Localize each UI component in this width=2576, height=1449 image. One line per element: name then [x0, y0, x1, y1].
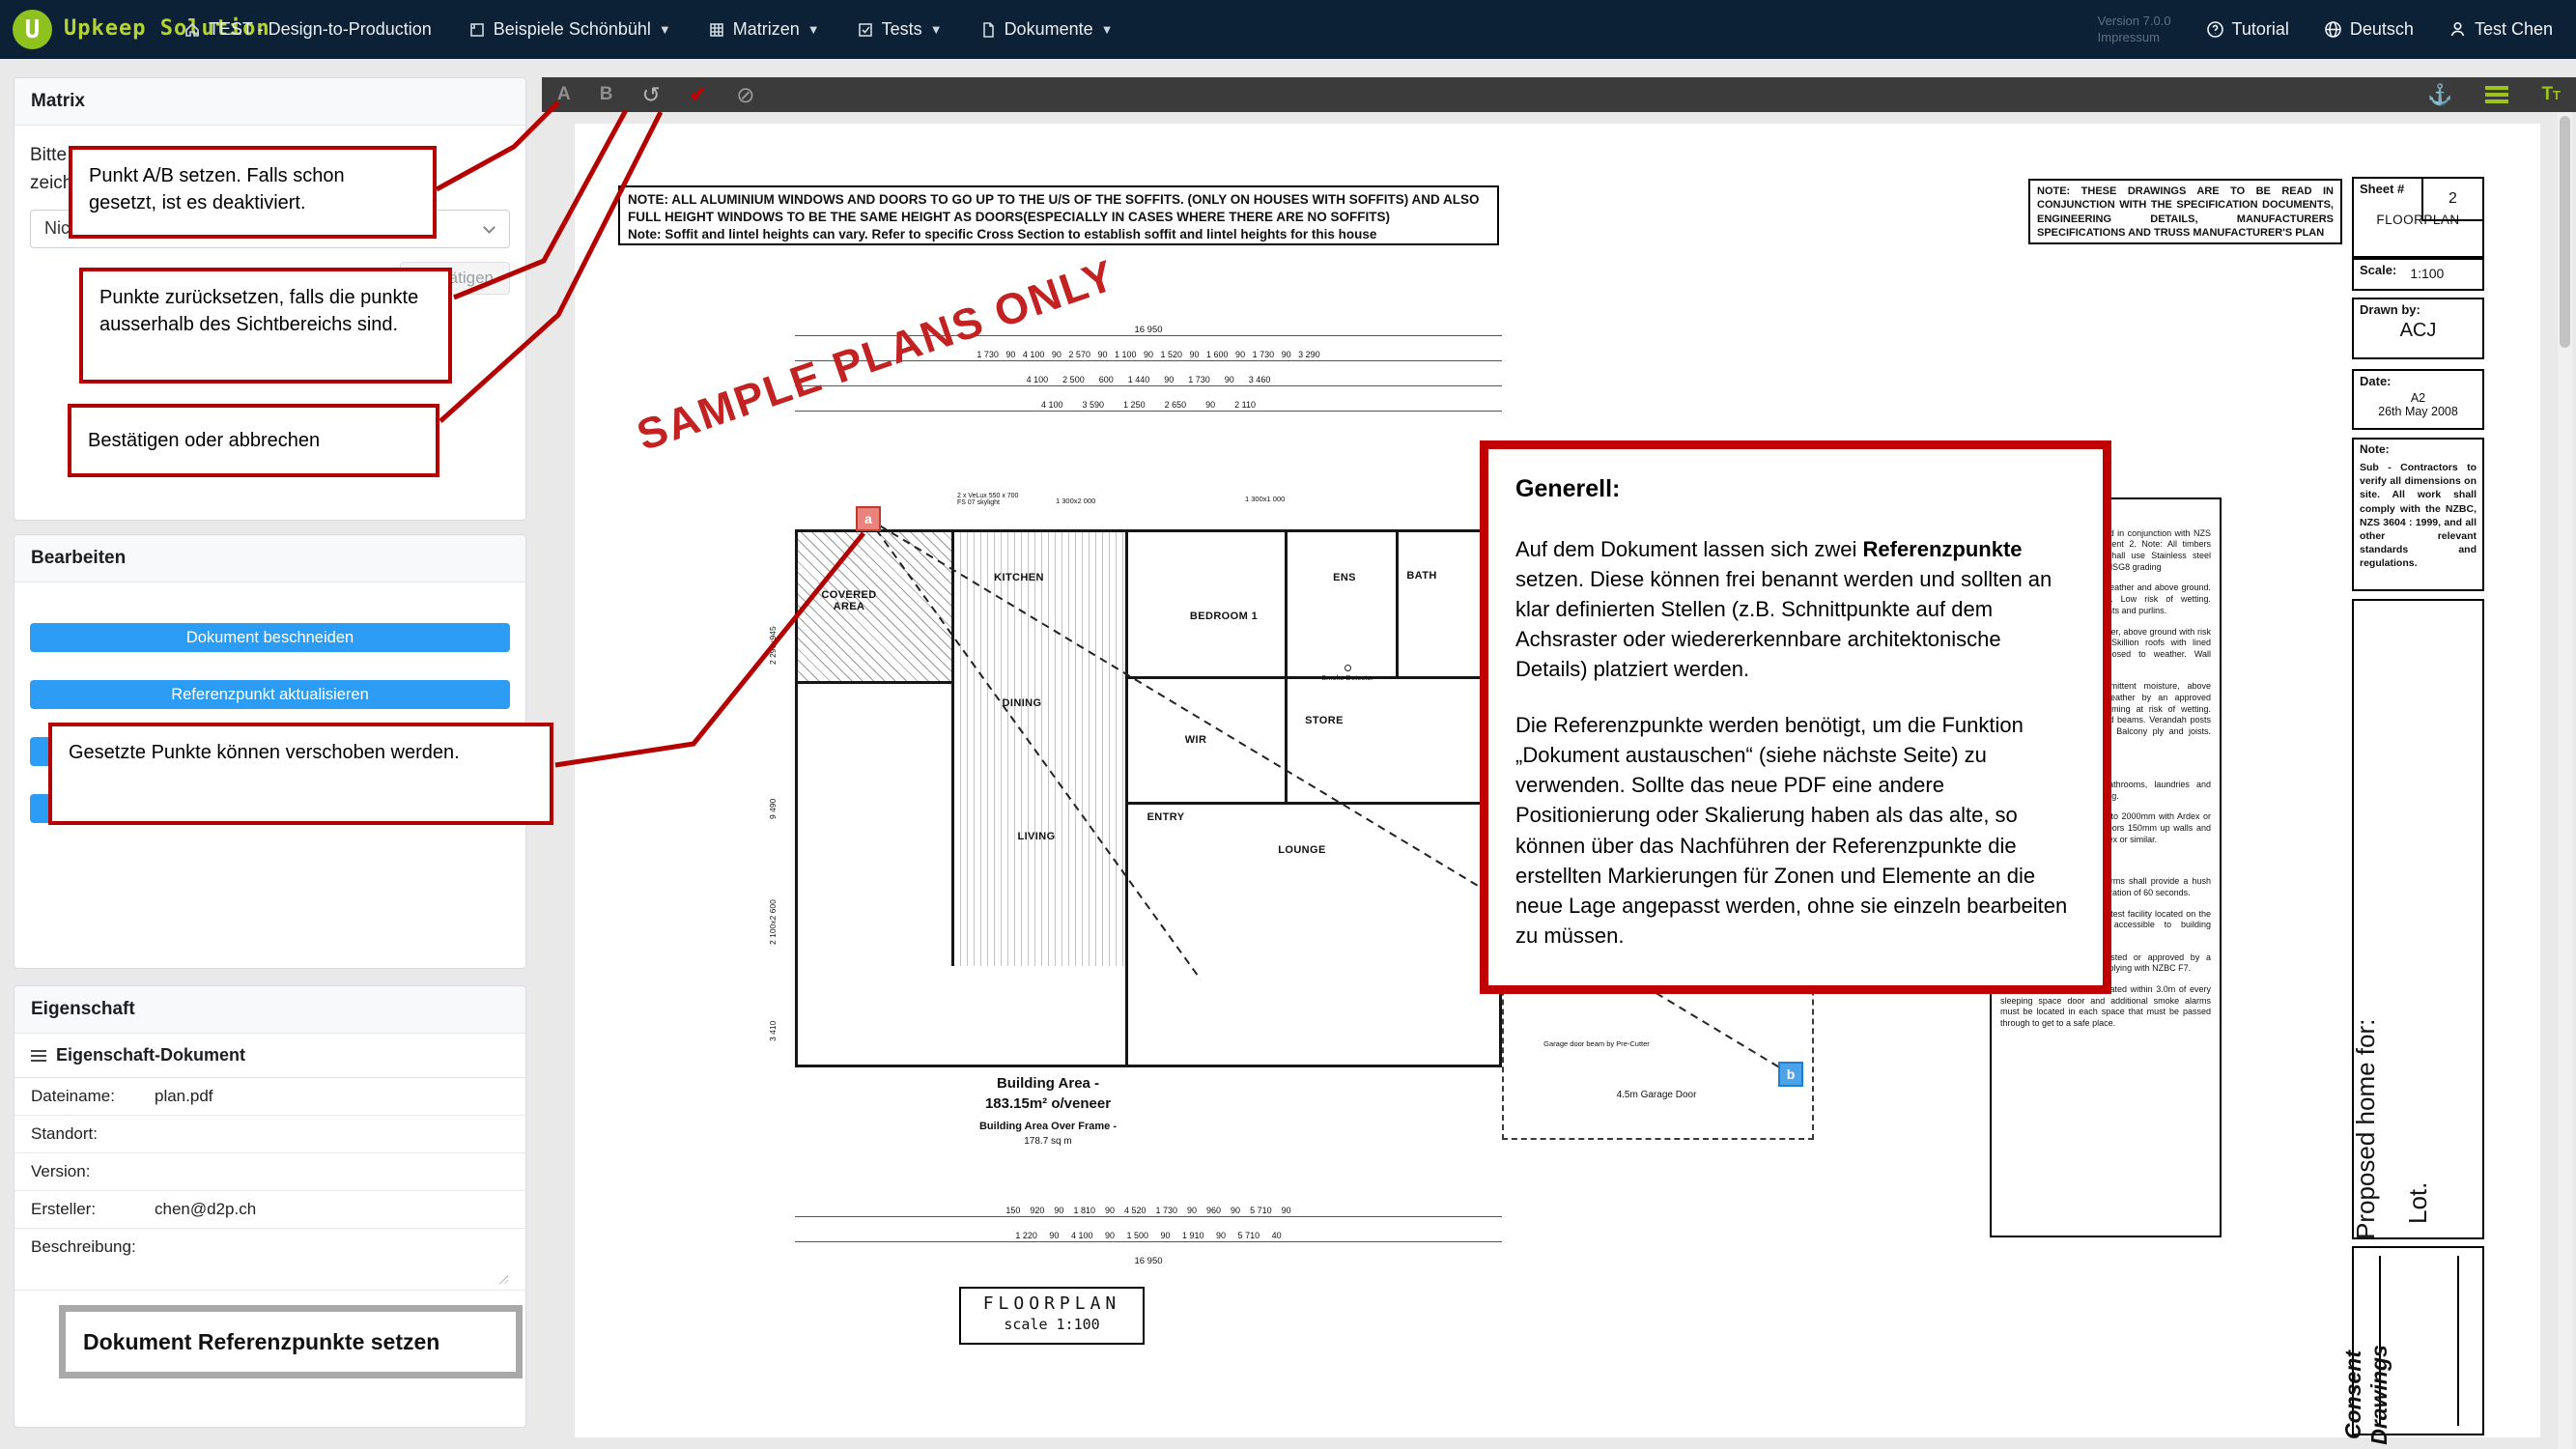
topbar-right: Version 7.0.0 Impressum Tutorial Deutsch…	[2098, 0, 2553, 59]
skylight-note-line2: FS 07 skylight	[957, 499, 1000, 506]
smoke-detector-icon	[1345, 665, 1351, 671]
menu-item-dokumente[interactable]: Dokumente ▼	[979, 19, 1114, 40]
scale-value: 1:100	[2410, 266, 2444, 281]
property-label: Ersteller:	[31, 1200, 155, 1219]
properties-section-title: Eigenschaft-Dokument	[56, 1045, 245, 1065]
room-label: KITCHEN	[980, 572, 1058, 583]
chevron-down-icon: ▼	[659, 22, 671, 37]
wall-interior-v1	[951, 529, 954, 966]
property-label: Standort:	[31, 1124, 155, 1144]
drawnby-value: ACJ	[2354, 320, 2482, 342]
wall-interior-v2	[1125, 529, 1128, 1067]
consent-line2: Drawings	[2366, 1345, 2392, 1445]
anchor-icon[interactable]: ⚓	[2427, 85, 2452, 105]
callout-move-points: Gesetzte Punkte können verschoben werden…	[48, 723, 553, 825]
date-value-1: A2	[2354, 391, 2482, 405]
property-label: Version:	[31, 1162, 155, 1181]
plan-top-note: NOTE: ALL ALUMINIUM WINDOWS AND DOORS TO…	[618, 185, 1499, 245]
text-size-icon[interactable]: TT	[2541, 84, 2561, 105]
list-icon	[31, 1050, 46, 1062]
property-label: Beschreibung:	[31, 1237, 155, 1281]
chevron-down-icon: ▼	[1101, 22, 1114, 37]
property-row-location: Standort:	[14, 1116, 525, 1153]
crop-document-button[interactable]: Dokument beschneiden	[30, 623, 510, 652]
top-note-text-2: Note: Soffit and lintel heights can vary…	[628, 227, 1376, 241]
impressum-link[interactable]: Impressum	[2098, 30, 2171, 46]
dim-bottom-total: 16 950	[795, 1256, 1502, 1266]
window-size-label-2: 1 300x1 000	[1245, 495, 1285, 503]
dim-top-row1: 1 730 90 4 100 90 2 570 90 1 100 90 1 52…	[795, 350, 1502, 361]
person-icon	[2449, 20, 2467, 39]
document-icon	[979, 21, 997, 39]
tutorial-label: Tutorial	[2232, 19, 2289, 40]
menu-label: TEST - Design-to-Production	[209, 19, 432, 40]
menu-item-tests[interactable]: Tests ▼	[857, 19, 943, 40]
check-square-icon	[857, 21, 874, 39]
tutorial-link[interactable]: Tutorial	[2206, 19, 2289, 40]
version-text: Version 7.0.0	[2098, 14, 2171, 30]
property-label: Dateiname:	[31, 1087, 155, 1106]
floorplan-title: FLOORPLAN	[961, 1293, 1143, 1314]
wall-interior-h1	[1125, 676, 1502, 679]
building-area-line4: 178.7 sq m	[942, 1136, 1154, 1147]
top-note-text-1: NOTE: ALL ALUMINIUM WINDOWS AND DOORS TO…	[628, 192, 1480, 224]
room-label: STORE	[1295, 715, 1353, 726]
properties-panel-title: Eigenschaft	[14, 986, 525, 1034]
room-label: WIR	[1172, 734, 1220, 746]
titleblock-scale-box: Scale: 1:100	[2352, 258, 2484, 291]
wall-bottom	[795, 1065, 1502, 1067]
reset-points-button undo-icon[interactable]: ↺	[641, 84, 660, 106]
scale-label: Scale:	[2354, 260, 2402, 280]
update-reference-point-button[interactable]: Referenzpunkt aktualisieren	[30, 680, 510, 709]
lot-label: Lot.	[2403, 1182, 2433, 1224]
date-label: Date:	[2354, 371, 2482, 391]
titleblock-sheet-box: Sheet # 2 FLOORPLAN	[2352, 177, 2484, 258]
confirm-points-button check-icon[interactable]: ✔	[690, 84, 707, 105]
card-icon	[468, 21, 486, 39]
properties-panel: Eigenschaft Eigenschaft-Dokument Dateina…	[14, 985, 526, 1428]
floorplan-title-box: FLOORPLAN scale 1:100	[959, 1287, 1145, 1345]
titleblock-note-box: Note: Sub - Contractors to verify all di…	[2352, 438, 2484, 591]
app-root: U Upkeep Solution TEST - Design-to-Produ…	[0, 0, 2576, 1449]
sheet-number: 2	[2421, 179, 2482, 221]
reference-point-a-marker[interactable]: a	[856, 506, 881, 531]
generell-paragraph-2: Die Referenzpunkte werden benötigt, um d…	[1515, 710, 2076, 952]
date-value-2: 26th May 2008	[2354, 405, 2482, 418]
document-toolbar: A B ↺ ✔ ⊘ ⚓ TT	[542, 77, 2576, 112]
wall-interior-h2	[1125, 802, 1502, 805]
chevron-down-icon	[483, 221, 495, 234]
top-navigation-bar: U Upkeep Solution TEST - Design-to-Produ…	[0, 0, 2576, 59]
property-row-description: Beschreibung:	[14, 1229, 525, 1291]
right-note-text: NOTE: THESE DRAWINGS ARE TO BE READ IN C…	[2037, 185, 2334, 239]
slide-title: Dokument Referenzpunkte setzen	[83, 1329, 439, 1355]
property-row-creator: Ersteller: chen@d2p.ch	[14, 1191, 525, 1229]
dim-bottom-row1: 150 920 90 1 810 90 4 520 1 730 90 960 9…	[795, 1206, 1502, 1217]
drawnby-label: Drawn by:	[2354, 299, 2482, 320]
generell-title: Generell:	[1515, 472, 2076, 507]
slide-title-frame: Dokument Referenzpunkte setzen	[59, 1305, 523, 1378]
room-label: LOUNGE	[1265, 844, 1339, 856]
dim-left-3: 2 100x2 600	[768, 899, 778, 945]
room-label: DINING	[983, 697, 1061, 709]
proposed-home-label: Proposed home for:	[2351, 1019, 2381, 1239]
room-label: ENTRY	[1135, 811, 1197, 823]
wall-left	[795, 529, 798, 1067]
room-label: BATH	[1398, 570, 1446, 582]
chevron-down-icon: ▼	[807, 22, 820, 37]
consent-line1: Consent	[2340, 1350, 2365, 1439]
generell-annotation-box: Generell: Auf dem Dokument lassen sich z…	[1480, 440, 2111, 994]
dim-top-total: 16 950	[795, 325, 1502, 336]
layers-menu-icon[interactable]	[2485, 86, 2508, 103]
titleblock-proposed-box: Proposed home for: Lot.	[2352, 599, 2484, 1239]
floorplan-scale: scale 1:100	[961, 1316, 1143, 1333]
callout-confirm-cancel: Bestätigen oder abbrechen	[68, 404, 439, 477]
main-scrollbar-track[interactable]	[2558, 112, 2572, 1449]
menu-item-beispiele[interactable]: Beispiele Schönbühl ▼	[468, 19, 671, 40]
menu-label: Tests	[882, 19, 922, 40]
titleblock-consent-box: Consent Drawings	[2352, 1246, 2484, 1435]
toolbar-right-group: ⚓ TT	[2427, 84, 2561, 105]
question-circle-icon	[2206, 20, 2224, 39]
main-menu: TEST - Design-to-Production Beispiele Sc…	[184, 0, 1114, 59]
garage-door-label: 4.5m Garage Door	[1579, 1090, 1734, 1100]
property-row-filename: Dateiname: plan.pdf	[14, 1078, 525, 1116]
plan-right-note: NOTE: THESE DRAWINGS ARE TO BE READ IN C…	[2028, 179, 2342, 244]
reference-point-b-marker[interactable]: b	[1778, 1062, 1803, 1087]
titleblock-note-text: Sub - Contractors to verify all dimensio…	[2354, 459, 2482, 572]
home-icon	[184, 21, 201, 39]
menu-item-project[interactable]: TEST - Design-to-Production	[184, 19, 432, 40]
property-value: plan.pdf	[155, 1087, 213, 1106]
room-label: COVERED AREA	[810, 589, 888, 612]
main-scrollbar-thumb[interactable]	[2560, 116, 2570, 348]
version-info: Version 7.0.0 Impressum	[2098, 14, 2171, 46]
set-point-a-button[interactable]: A	[557, 84, 571, 105]
wall-interior-v3	[1285, 529, 1288, 802]
garage-beam-label: Garage door beam by Pre-Cutter	[1529, 1039, 1664, 1048]
room-label: BEDROOM 1	[1175, 611, 1272, 622]
building-area-line3: Building Area Over Frame -	[942, 1121, 1154, 1132]
wall-covered-area	[795, 681, 954, 684]
building-area-line1: Building Area -	[942, 1075, 1154, 1092]
upkeep-logo[interactable]: U	[13, 10, 52, 49]
resize-handle-icon[interactable]	[498, 1274, 508, 1284]
smoke-detector-label: Smoke Detector	[1318, 665, 1376, 682]
skylight-note-line1: 2 x VeLux 550 x 700	[957, 493, 1018, 499]
callout-reset-points: Punkte zurücksetzen, falls die punkte au…	[79, 268, 452, 384]
titleblock-date-box: Date: A2 26th May 2008	[2352, 369, 2484, 430]
dim-left-2: 9 490	[768, 799, 778, 819]
titleblock-note-label: Note:	[2354, 440, 2482, 459]
consent-rule-right	[2457, 1256, 2459, 1426]
user-label: Test Chen	[2475, 19, 2553, 40]
wall-interior-v4	[1396, 529, 1399, 676]
cancel-points-button prohibition-icon[interactable]: ⊘	[736, 84, 754, 106]
generell-paragraph-1: Auf dem Dokument lassen sich zwei Refere…	[1515, 534, 2076, 685]
room-label: LIVING	[998, 831, 1075, 842]
skylight-note: 2 x VeLux 550 x 700 FS 07 skylight	[957, 493, 1044, 506]
dim-left-4: 3 410	[768, 1021, 778, 1041]
titleblock-drawnby-box: Drawn by: ACJ	[2352, 298, 2484, 359]
dim-left-1: 2 290x945	[768, 626, 778, 665]
grid-icon	[708, 21, 725, 39]
dim-bottom-row2: 1 220 90 4 100 90 1 500 90 1 910 90 5 71…	[795, 1231, 1502, 1242]
menu-label: Beispiele Schönbühl	[494, 19, 651, 40]
globe-icon	[2324, 20, 2342, 39]
room-label: ENS	[1323, 572, 1366, 583]
menu-label: Dokumente	[1005, 19, 1093, 40]
timber-floor-hatching	[954, 532, 1125, 966]
dim-top-row2: 4 100 2 500 600 1 440 90 1 730 90 3 460	[795, 375, 1502, 386]
menu-item-matrizen[interactable]: Matrizen ▼	[708, 19, 820, 40]
matrix-panel-title: Matrix	[14, 78, 525, 126]
smoke-detector-text: Smoke Detector	[1321, 673, 1373, 682]
chevron-down-icon: ▼	[930, 22, 943, 37]
set-point-b-button[interactable]: B	[600, 84, 613, 105]
menu-label: Matrizen	[733, 19, 800, 40]
window-size-label-1: 1 300x2 000	[1056, 497, 1095, 505]
logo-letter: U	[25, 15, 41, 44]
property-row-version: Version:	[14, 1153, 525, 1191]
user-menu[interactable]: Test Chen	[2449, 19, 2553, 40]
property-value: chen@d2p.ch	[155, 1200, 256, 1219]
callout-point-ab: Punkt A/B setzen. Falls schon gesetzt, i…	[69, 146, 437, 239]
building-area-line2: 183.15m² o/veneer	[942, 1095, 1154, 1112]
language-switch[interactable]: Deutsch	[2324, 19, 2414, 40]
consent-drawings-label: Consent Drawings	[2340, 1308, 2392, 1449]
language-label: Deutsch	[2350, 19, 2414, 40]
edit-panel-title: Bearbeiten	[14, 535, 525, 582]
dim-top-row3: 4 100 3 590 1 250 2 650 90 2 110	[795, 400, 1502, 412]
